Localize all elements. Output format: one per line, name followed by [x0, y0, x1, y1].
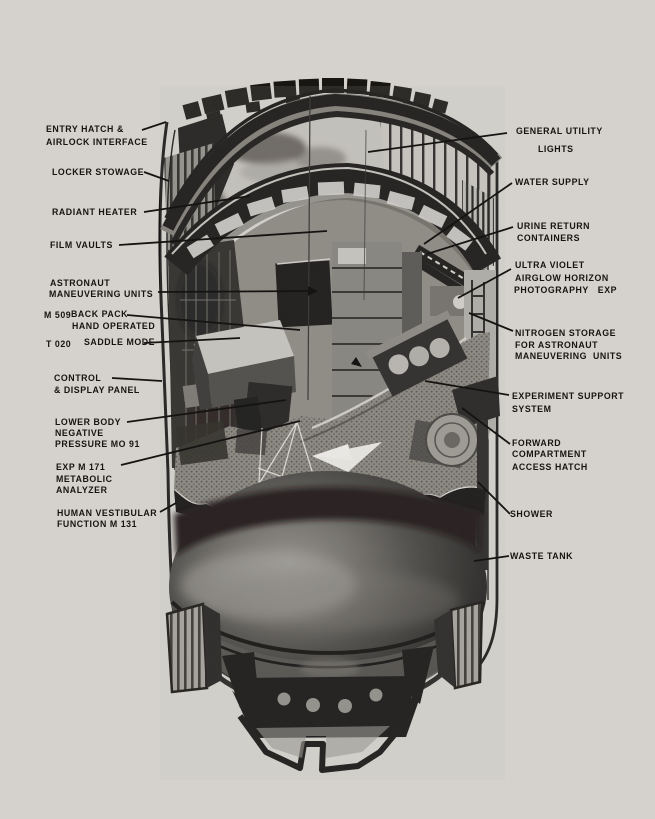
svg-text:COMPARTMENT: COMPARTMENT: [512, 449, 587, 459]
svg-text:FILM VAULTS: FILM VAULTS: [50, 240, 113, 250]
svg-text:AIRLOCK INTERFACE: AIRLOCK INTERFACE: [46, 137, 148, 147]
svg-text:EXPERIMENT SUPPORT: EXPERIMENT SUPPORT: [512, 391, 624, 401]
svg-text:ENTRY HATCH &: ENTRY HATCH &: [46, 124, 124, 134]
svg-text:FUNCTION M 131: FUNCTION M 131: [57, 519, 137, 529]
svg-text:T 020: T 020: [46, 339, 71, 349]
svg-text:LOCKER STOWAGE: LOCKER STOWAGE: [52, 167, 144, 177]
svg-text:CONTROL: CONTROL: [54, 373, 101, 383]
svg-text:ACCESS HATCH: ACCESS HATCH: [512, 462, 588, 472]
svg-text:BACK PACK: BACK PACK: [71, 309, 128, 319]
svg-text:RADIANT HEATER: RADIANT HEATER: [52, 207, 137, 217]
svg-text:HUMAN VESTIBULAR: HUMAN VESTIBULAR: [57, 508, 157, 518]
svg-text:NEGATIVE: NEGATIVE: [55, 428, 104, 438]
svg-text:CONTAINERS: CONTAINERS: [517, 233, 580, 243]
svg-text:SHOWER: SHOWER: [510, 509, 553, 519]
svg-text:M 509: M 509: [44, 310, 71, 320]
svg-text:LIGHTS: LIGHTS: [538, 144, 574, 154]
svg-text:GENERAL UTILITY: GENERAL UTILITY: [516, 126, 603, 136]
svg-text:SADDLE MODE: SADDLE MODE: [84, 337, 155, 347]
svg-text:WATER SUPPLY: WATER SUPPLY: [515, 177, 590, 187]
svg-text:MANEUVERING UNITS: MANEUVERING UNITS: [515, 351, 622, 361]
svg-text:URINE RETURN: URINE RETURN: [517, 221, 590, 231]
svg-text:FORWARD: FORWARD: [512, 438, 561, 448]
svg-text:PRESSURE MO 91: PRESSURE MO 91: [55, 439, 140, 449]
svg-text:FOR ASTRONAUT: FOR ASTRONAUT: [515, 340, 598, 350]
svg-text:ANALYZER: ANALYZER: [56, 485, 108, 495]
svg-text:ASTRONAUT: ASTRONAUT: [50, 278, 110, 288]
svg-text:WASTE TANK: WASTE TANK: [510, 551, 573, 561]
svg-text:ULTRA VIOLET: ULTRA VIOLET: [515, 260, 585, 270]
svg-text:EXP M 171: EXP M 171: [56, 462, 105, 472]
svg-text:SYSTEM: SYSTEM: [512, 404, 551, 414]
svg-text:AIRGLOW HORIZON: AIRGLOW HORIZON: [515, 273, 609, 283]
svg-text:NITROGEN STORAGE: NITROGEN STORAGE: [515, 328, 616, 338]
svg-text:HAND OPERATED: HAND OPERATED: [72, 321, 155, 331]
svg-text:LOWER BODY: LOWER BODY: [55, 417, 121, 427]
svg-text:& DISPLAY PANEL: & DISPLAY PANEL: [54, 385, 140, 395]
svg-text:PHOTOGRAPHY EXP: PHOTOGRAPHY EXP: [514, 285, 617, 295]
svg-text:MANEUVERING UNITS: MANEUVERING UNITS: [49, 289, 153, 299]
svg-text:METABOLIC: METABOLIC: [56, 474, 113, 484]
